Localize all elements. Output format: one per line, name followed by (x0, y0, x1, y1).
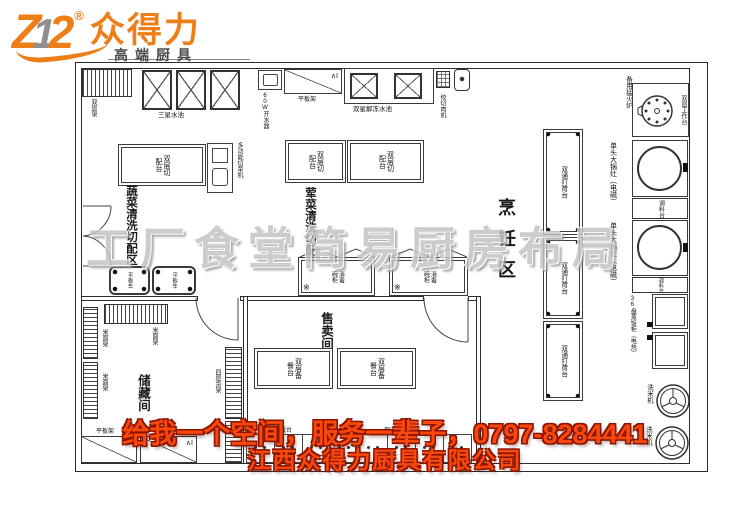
spice-table-label: 调料台 (657, 278, 663, 293)
zone-label-cooking: 烹饪区 (497, 198, 515, 308)
zone-label-storage: 储藏间 (133, 374, 152, 388)
wall-storage-top (81, 296, 198, 301)
pass-table-2: 双通打荷台 (543, 237, 583, 319)
rice-steamer-1 (652, 294, 688, 329)
flat-rack-top: ∧I (284, 69, 342, 94)
flat-cart-label: 平板车 (171, 271, 177, 290)
meat-grinder-unit (436, 71, 450, 88)
wok-ring (637, 225, 682, 270)
rice-flour-rack-left-1 (83, 307, 98, 359)
multi-function-cutter-label: 多功能切菜机 (236, 142, 242, 192)
spice-table-1: 调料台 (632, 198, 688, 219)
three-star-sink-bowl (210, 70, 240, 110)
star-mark: ※ (394, 284, 401, 292)
burner-icon (635, 86, 679, 136)
double-layer-rack-label: 双层架 (90, 99, 96, 123)
rice-flour-rack-left-2 (83, 362, 98, 419)
star-mark: ※ (303, 284, 310, 292)
spice-table-label: 调料台 (657, 199, 664, 218)
pass-table-label: 双通打荷台 (559, 259, 566, 297)
meat-cutting-table-label: 双层切配台 (307, 150, 323, 174)
prep-table-2: 双层备餐台 (337, 348, 416, 389)
pass-table-1: 双通打荷台 (543, 129, 583, 235)
wall-sales-top (240, 296, 424, 301)
sterilizer-cabinet-label: 消毒碗柜 (330, 270, 344, 284)
vent-mark: ∧I (331, 73, 338, 80)
steamer-hinge (647, 335, 653, 340)
company-logo: Z12®众得力 高端厨具 (12, 2, 252, 64)
pass-table-label: 双通打荷台 (559, 342, 566, 380)
flat-cart-label: 平板车 (126, 271, 132, 290)
four-layer-rack-label: 四层货架 (214, 369, 220, 399)
prep-table-1: 双层备餐台 (254, 348, 333, 389)
flat-rack-top-label: 平板架 (298, 97, 316, 103)
pass-table-label: 双通打荷台 (559, 163, 566, 201)
registered-mark-icon: ® (74, 8, 84, 23)
zone-label-sales: 售卖间 (317, 312, 335, 326)
floorplan-canvas: Z12®众得力 高端厨具 双层架 三星水池 60W开水器 ∧I 平板架 (0, 0, 750, 530)
double-star-sink-bowl (350, 73, 378, 99)
rice-steamer-2 (652, 332, 688, 369)
zone-label-vegetable: 蔬菜清洗切配区 (118, 185, 144, 215)
multi-function-cutter (207, 143, 233, 193)
three-star-sink-bowl (142, 70, 172, 110)
rice-flour-rack-top (104, 304, 168, 324)
three-star-sink-bowl (176, 70, 206, 110)
veg-cutting-table-label: 双层切配台 (154, 153, 170, 177)
meat-cutting-table-label: 双层切配台 (377, 150, 393, 174)
wok-stove-tab (683, 243, 688, 252)
meat-cutting-table-1: 双层切配台 (285, 140, 346, 183)
rice-flour-rack-label: 米面架 (151, 327, 157, 349)
flat-cart-1: 平板车 (109, 266, 150, 295)
sterilizer-cabinet-label: 消毒碗柜 (422, 270, 436, 284)
spare-burner-station: 双层工作台 (632, 83, 689, 137)
double-star-sink-bowl (394, 73, 422, 99)
prep-table-label: 双层备餐台 (368, 357, 384, 381)
veg-cutting-table: 双层切配台 (118, 144, 206, 186)
meat-grinder-label: 绞切肉机 (439, 94, 445, 124)
prep-table-label: 双层备餐台 (285, 357, 301, 381)
sterilizer-cabinet-2: 消毒碗柜 ※ (389, 257, 468, 296)
wok-ring (637, 146, 682, 191)
meat-cutting-table-2: 双层切配台 (347, 140, 424, 183)
pass-table-3: 双通打荷台 (543, 321, 583, 401)
water-boiler (258, 70, 282, 90)
double-star-sink-label: 双星解冻水池 (353, 107, 392, 114)
three-star-sink-label: 三星水池 (158, 113, 184, 120)
wok-stove-1-label: 单头大锅灶（电磁） (608, 142, 617, 182)
company-name-banner: 江西众得力厨具有限公司 (60, 441, 710, 475)
rice-flour-rack-label: 米面架 (101, 373, 107, 395)
sterilizer-cabinet-1: 消毒碗柜 ※ (298, 257, 375, 296)
zone-label-meat: 荤菜清洗切配区 (301, 187, 319, 200)
work-table-label: 双层工作台 (680, 90, 686, 130)
wok-stove-tab (683, 163, 688, 172)
four-layer-rack-1 (225, 347, 242, 419)
brand-tagline: 高端厨具 (114, 45, 198, 65)
water-boiler-label: 60W开水器 (262, 93, 268, 133)
wok-stove-2-label: 单头大锅灶（电磁） (608, 222, 617, 262)
double-layer-rack (82, 69, 132, 97)
steamer-hinge (647, 322, 653, 327)
flat-cart-2: 平板车 (152, 266, 196, 295)
meat-grinder-bowl (454, 69, 470, 91)
rice-steamer-label: 36盘蒸饭柜（电热） (628, 296, 636, 336)
cutter-unit (212, 148, 228, 163)
rice-washer-label: 洗米机 (645, 384, 652, 406)
rice-flour-rack-label: 米面架 (101, 329, 107, 351)
water-boiler-tank (263, 74, 278, 86)
spice-table-2: 调料台 (632, 277, 688, 293)
cutter-unit (212, 168, 228, 186)
spare-burner-label: 备用猛火炉 (624, 76, 631, 116)
